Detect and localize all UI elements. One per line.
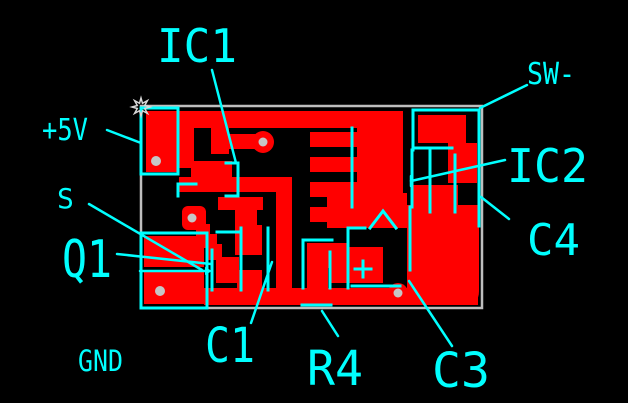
pcb-layout-canvas: IC1 +5V S Q1 GND C1 R4 C3 C4 IC2 SW-	[0, 0, 628, 403]
pad-ic2-pin[interactable]	[310, 207, 357, 222]
label-plus5v[interactable]: +5V	[42, 113, 88, 148]
label-ic1[interactable]: IC1	[157, 19, 237, 73]
label-c4[interactable]: C4	[527, 215, 580, 266]
label-q1[interactable]: Q1	[62, 230, 112, 290]
pcb-layout-drawing: IC1 +5V S Q1 GND C1 R4 C3 C4 IC2 SW-	[0, 0, 628, 403]
copper-trace[interactable]	[211, 128, 229, 154]
drill-hole	[155, 286, 165, 296]
label-sw-minus[interactable]: SW-	[527, 57, 575, 92]
drill-hole	[151, 156, 161, 166]
drill-hole	[188, 214, 197, 223]
leader-r4	[322, 311, 338, 336]
pad-ic2-pin[interactable]	[310, 182, 357, 197]
label-r4[interactable]: R4	[307, 341, 363, 397]
leader-plus5v	[107, 130, 141, 143]
leader-c4	[481, 197, 509, 219]
pad-ic2-pin[interactable]	[310, 132, 357, 147]
copper-pour-ic2[interactable]	[357, 113, 403, 210]
pad-connector-gnd[interactable]	[144, 271, 204, 304]
label-s[interactable]: S	[57, 182, 74, 215]
label-c1[interactable]: C1	[205, 318, 255, 374]
drill-hole	[259, 138, 268, 147]
copper-pour-c3[interactable]	[407, 205, 479, 305]
pad-sw[interactable]	[418, 115, 466, 143]
label-gnd[interactable]: GND	[78, 344, 123, 378]
label-ic2[interactable]: IC2	[507, 139, 588, 193]
pad-ic2-pin[interactable]	[310, 157, 357, 172]
leader-sw	[480, 85, 527, 108]
copper-trace[interactable]	[307, 268, 328, 288]
pad-plus5v[interactable]	[146, 111, 177, 172]
copper-trace[interactable]	[276, 177, 292, 305]
copper-trace[interactable]	[413, 185, 458, 210]
pad-r4[interactable]	[307, 243, 347, 268]
drill-hole	[394, 289, 403, 298]
label-c3[interactable]: C3	[432, 343, 490, 399]
pad-q1-center[interactable]	[216, 257, 239, 283]
